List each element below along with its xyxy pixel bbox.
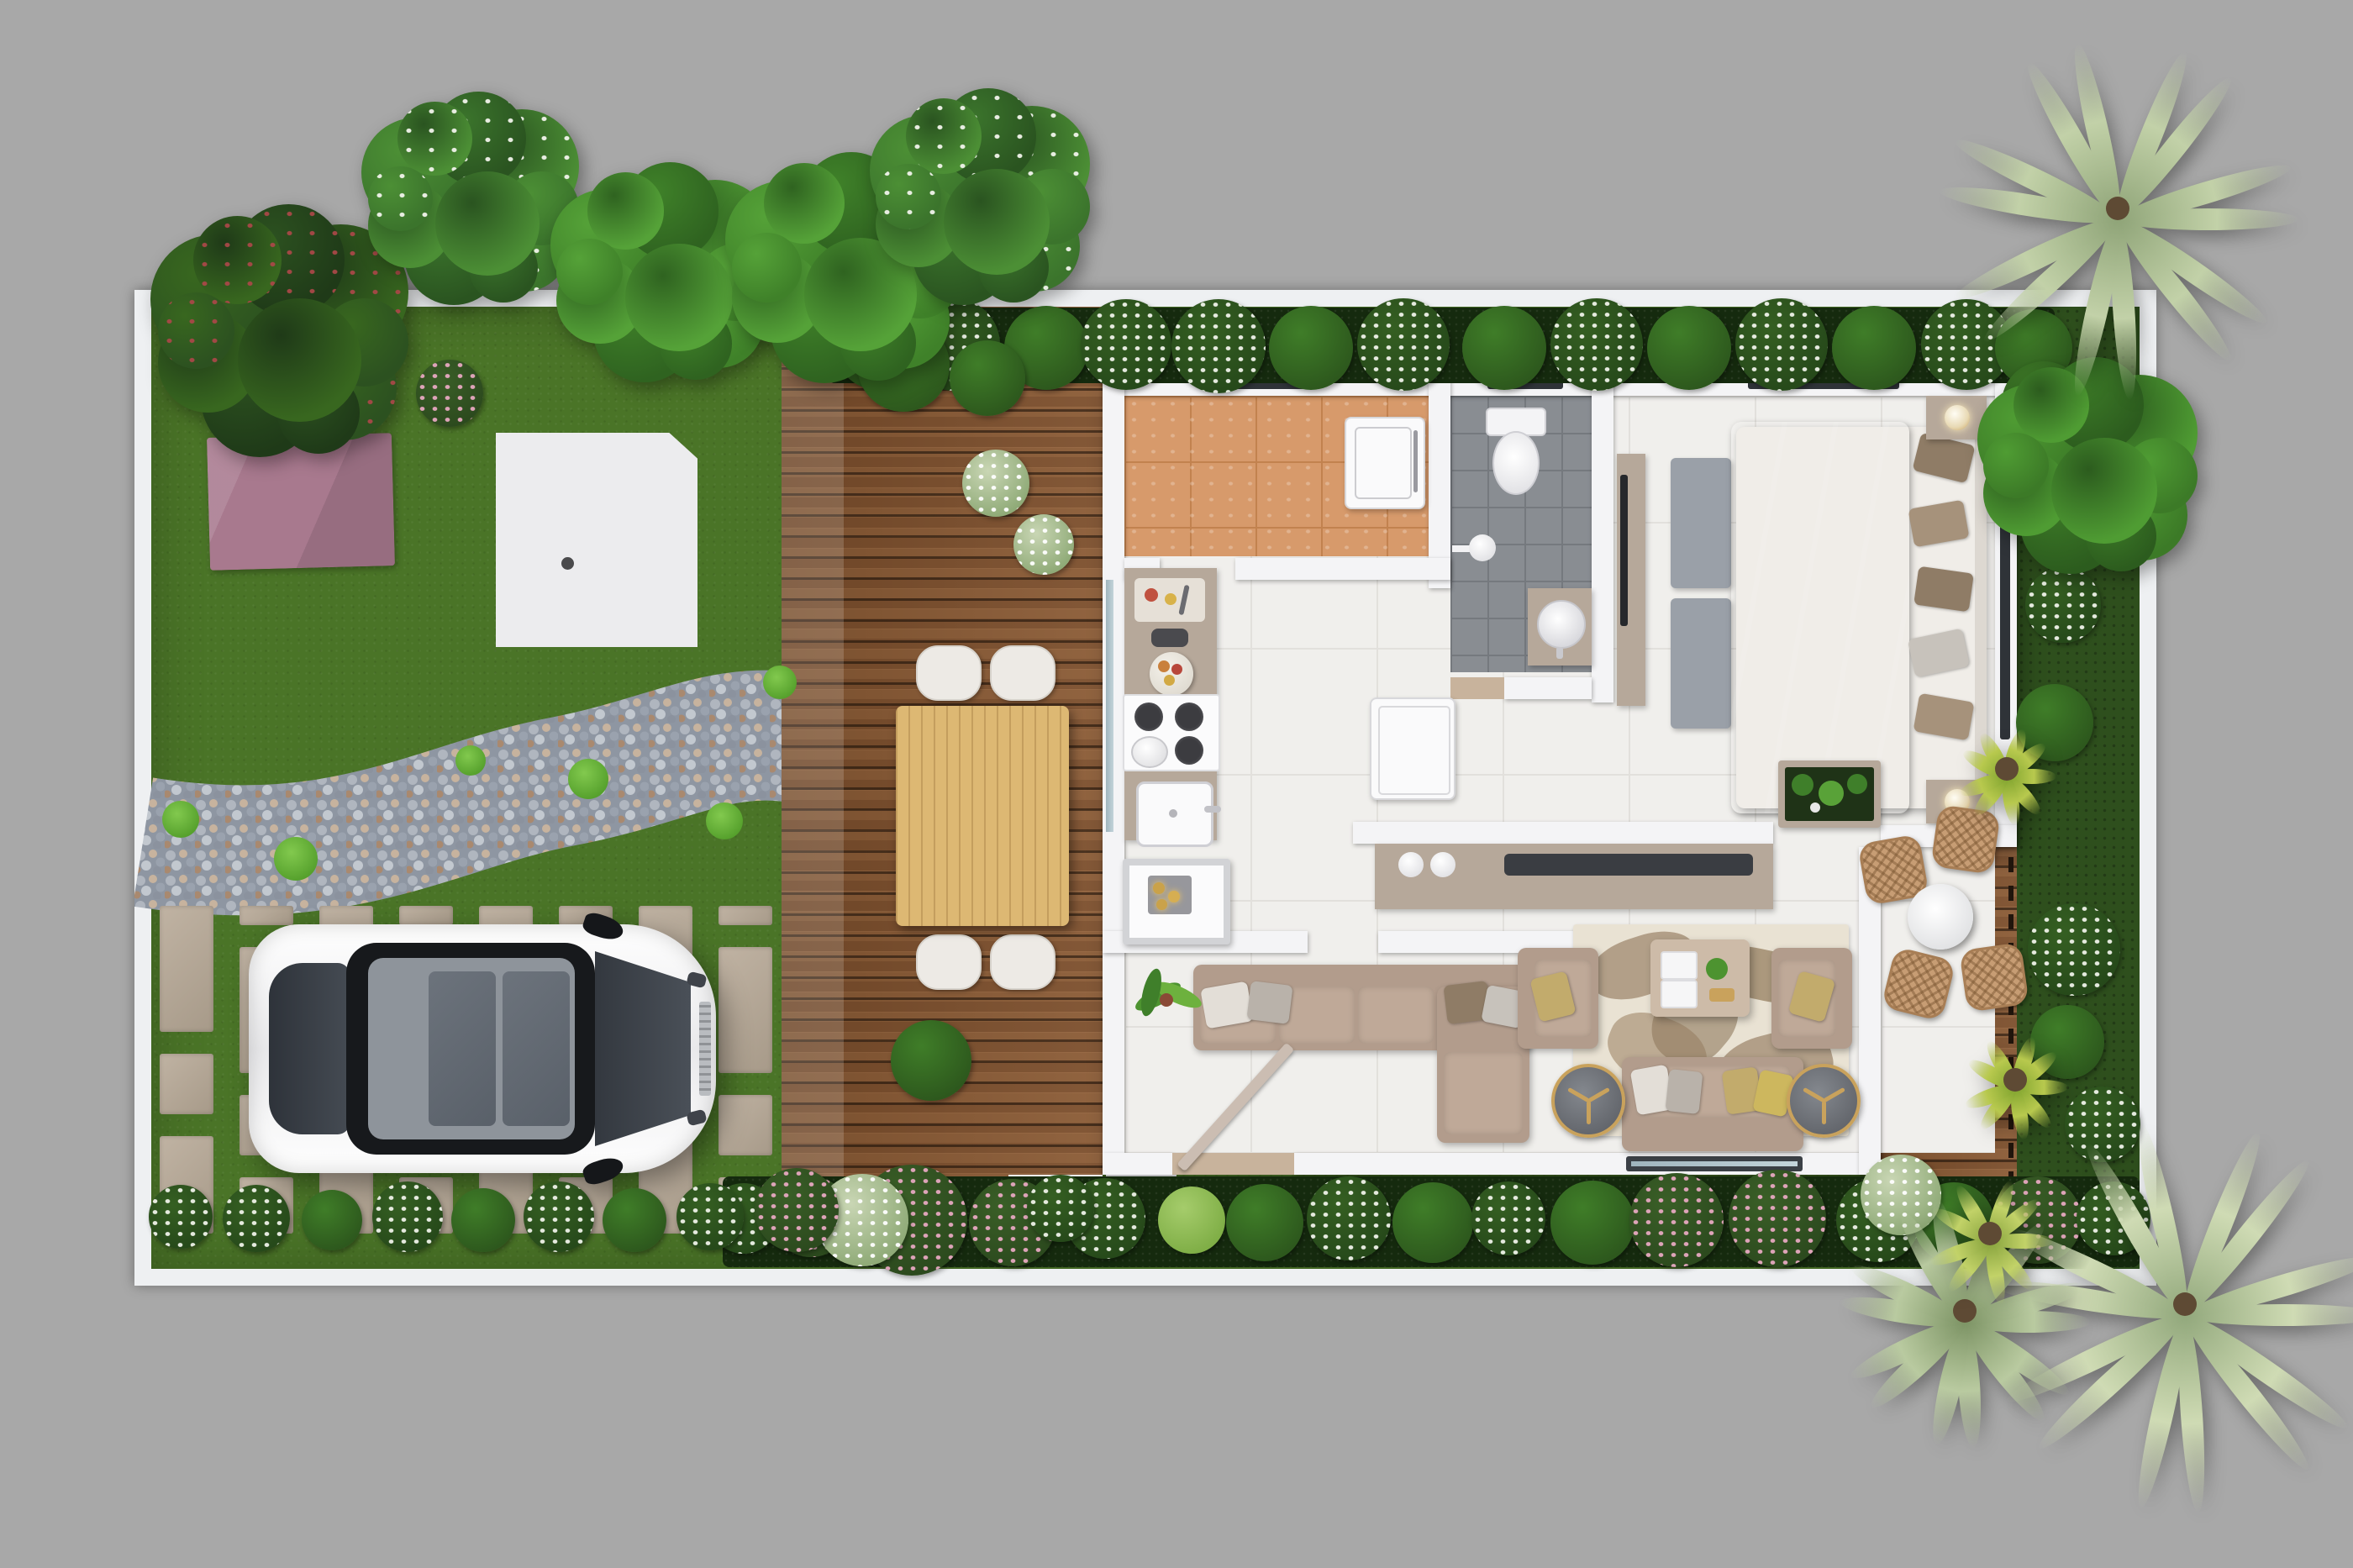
dining-chair-1 <box>916 645 982 701</box>
coffee-table-plant <box>1706 958 1728 980</box>
grass-tuft <box>455 745 486 776</box>
shrub-white <box>2028 903 2120 996</box>
living-sofa <box>1622 1057 1803 1151</box>
aquarium-plant-1 <box>1792 774 1813 796</box>
firebox <box>1148 876 1192 914</box>
tree-flowers <box>876 164 941 229</box>
dining-chair-4 <box>990 934 1055 990</box>
bed-duvet <box>1731 422 1909 813</box>
floor-plan-scene <box>0 0 2353 1568</box>
tree-terrace-fern-bottom <box>1960 1024 2071 1135</box>
shrub-flowers <box>149 1185 213 1249</box>
sectional-sofa <box>1193 965 1529 1143</box>
washing-machine-door-slit <box>1413 430 1418 492</box>
shrub-flowers <box>676 1183 744 1250</box>
shrub-green <box>1392 1182 1473 1263</box>
shrub-green <box>451 1188 515 1252</box>
shrub-pink <box>1629 1173 1724 1267</box>
shrub-white <box>149 1185 213 1249</box>
tree-blob <box>238 298 361 422</box>
shrub-pink <box>1729 1170 1826 1267</box>
shrub-white <box>1550 298 1643 391</box>
dining-chair-3 <box>916 934 982 990</box>
driveway-paver <box>719 906 772 925</box>
burner-1 <box>1134 702 1163 731</box>
side-table-left-spoke-1 <box>1587 1101 1591 1124</box>
driveway-paver <box>160 1054 213 1114</box>
shrub-white <box>223 1185 290 1252</box>
fruit-1 <box>1158 660 1170 672</box>
shrub-white <box>372 1181 443 1252</box>
shrub-green <box>603 1188 666 1252</box>
plant-center <box>1160 993 1173 1007</box>
tree-blob <box>764 163 845 244</box>
tree-deck-fern-bottom <box>1923 1166 2057 1301</box>
tree-blossom-tree-deck <box>855 76 1108 328</box>
palm-crown <box>1953 1299 1977 1323</box>
living-sofa-pillow-2 <box>1665 1069 1703 1114</box>
armchair-left <box>1518 948 1598 1049</box>
shrub-green <box>1462 306 1546 390</box>
coffee-tray-2 <box>1661 980 1698 1008</box>
island-bar-counter <box>1375 844 1773 909</box>
aquarium-ornament <box>1810 802 1820 813</box>
shrub-flowers <box>1307 1176 1391 1260</box>
side-table-left <box>1551 1064 1625 1138</box>
shrub-green <box>1226 1184 1303 1261</box>
shrub-flowers <box>372 1181 443 1252</box>
grass-tuft <box>706 802 743 839</box>
shrub-flowers <box>962 450 1029 517</box>
pot-on-hob <box>1131 736 1168 768</box>
shrub-flowers <box>1357 298 1450 391</box>
burner-2 <box>1175 702 1203 731</box>
shrub-flowers <box>1027 1175 1094 1242</box>
kitchen-sink <box>1136 781 1213 847</box>
island-hob-strip <box>1504 854 1753 876</box>
burner-3 <box>1175 736 1203 765</box>
cutting-board <box>1134 578 1205 622</box>
shrub-flowers <box>1550 298 1643 391</box>
tree-blob <box>2051 438 2157 544</box>
sectional-pillow-white <box>1200 981 1253 1029</box>
grass-tuft <box>274 837 318 881</box>
side-table-right-spoke-3 <box>1823 1087 1845 1102</box>
tree-blob <box>1983 433 2049 498</box>
suv-grille <box>699 1002 711 1096</box>
sink-faucet <box>1204 806 1221 813</box>
vanity-faucet <box>1556 647 1563 659</box>
bar-bowl-1 <box>1398 852 1424 877</box>
suv-sunroof-2 <box>503 971 570 1126</box>
coffee-tray-1 <box>1661 951 1698 980</box>
shrub-flowers <box>2028 903 2120 996</box>
tree-flowers <box>193 216 282 304</box>
tree-blob <box>944 169 1050 275</box>
terrace-round-table <box>1908 884 1973 950</box>
shrub-white <box>1471 1181 1545 1255</box>
shrub-flowers <box>755 1168 839 1252</box>
board-fruit-yellow <box>1165 593 1176 605</box>
fire-log-1 <box>1153 882 1165 894</box>
shrub-white <box>676 1183 744 1250</box>
double-bed <box>1736 427 1985 808</box>
fire-log-2 <box>1168 891 1180 902</box>
bedside-bench-bottom <box>1671 598 1731 729</box>
shrub-green <box>1832 306 1916 390</box>
fruit-bowl <box>1150 652 1193 696</box>
shrub-flowers <box>223 1185 290 1252</box>
tree-flowers <box>397 102 472 176</box>
shrub-flowers <box>1735 298 1828 391</box>
tree-flowers <box>368 166 433 231</box>
shower-head <box>1469 534 1496 561</box>
bathroom-door-threshold <box>1450 677 1504 699</box>
tree-blob <box>732 233 802 303</box>
side-table-left-spoke-2 <box>1567 1087 1590 1102</box>
coffee-table-gold-deco <box>1709 988 1734 1002</box>
shrub-white <box>1171 299 1266 393</box>
deck-light-band <box>782 307 844 1185</box>
suv-windshield <box>595 951 691 1146</box>
dining-chair-2 <box>990 645 1055 701</box>
shrub-white <box>1357 298 1450 391</box>
suv-rear-window <box>269 963 350 1134</box>
wall-shower <box>1452 534 1494 563</box>
fruit-3 <box>1164 675 1175 686</box>
sink-drain <box>1169 809 1177 818</box>
side-table-left-spoke-3 <box>1587 1087 1610 1102</box>
shrub-ball <box>1158 1187 1225 1254</box>
bedroom-tv <box>1620 475 1628 626</box>
bathroom-vanity <box>1528 588 1592 666</box>
aquarium-tank <box>1785 767 1874 821</box>
palm-crown <box>2003 1068 2027 1092</box>
shrub-flowers <box>1171 299 1266 393</box>
tree-flowers <box>906 98 982 174</box>
driveway-paver <box>719 947 772 1073</box>
sectional-cushion-3 <box>1358 987 1434 1044</box>
wicker-stool-4 <box>1959 942 2029 1013</box>
side-table-right-spoke-2 <box>1803 1087 1825 1102</box>
tree-blob <box>587 172 664 249</box>
palm-crown <box>2173 1292 2197 1316</box>
armchair-right <box>1771 948 1852 1049</box>
shrub-flowers <box>1729 1170 1826 1267</box>
fruit-2 <box>1171 664 1182 675</box>
shrub-flowers <box>1013 514 1074 575</box>
tree-palm-top-right <box>1937 28 2298 389</box>
palm-crown <box>1995 757 2019 781</box>
palm-crown <box>1978 1222 2002 1245</box>
palm-crown <box>2106 197 2129 220</box>
shrub-green <box>1550 1181 1634 1265</box>
grass-tuft <box>763 666 797 699</box>
tree-blob <box>435 171 540 276</box>
sectional-pillow-gray <box>1246 981 1292 1024</box>
side-table-right-spoke-1 <box>1822 1101 1826 1124</box>
hall-console-top-line <box>1378 706 1450 795</box>
shed-roof-vent <box>561 557 574 570</box>
toilet-bowl <box>1492 431 1540 495</box>
aquarium-plant-2 <box>1819 781 1844 806</box>
suv-sunroof-1 <box>429 971 496 1126</box>
window-living-south-glass <box>1631 1161 1798 1166</box>
gas-hob <box>1123 694 1220 771</box>
vanity-basin <box>1537 600 1586 649</box>
shrub-green <box>302 1190 362 1250</box>
driveway-paver <box>160 906 213 1032</box>
coffee-table <box>1650 939 1750 1017</box>
board-fruit-red <box>1145 588 1158 602</box>
garden-shed <box>496 433 697 647</box>
bedside-bench-top <box>1671 458 1731 588</box>
wall-laundry-bottom-b <box>1235 558 1450 580</box>
grass-tuft <box>162 801 199 838</box>
shrub-white <box>1027 1175 1094 1242</box>
shrub-deckwhite <box>1013 514 1074 575</box>
tree-terrace-fern-top <box>1955 717 2059 821</box>
wall-laundry-bathroom <box>1429 374 1450 588</box>
washing-machine <box>1345 417 1425 509</box>
white-suv <box>249 918 716 1180</box>
lounge-potted-plant <box>1129 963 1205 1039</box>
fireplace <box>1123 859 1230 944</box>
shrub-flowers <box>524 1181 594 1252</box>
grass-tuft <box>568 759 608 799</box>
shrub-white <box>1735 298 1828 391</box>
coffee-grinder <box>1151 629 1188 647</box>
wall-bottom-left-of-door <box>1103 1153 1172 1175</box>
shrub-flowers <box>1629 1173 1724 1267</box>
shrub-green <box>1269 306 1353 390</box>
aquarium-console <box>1778 760 1881 828</box>
bar-bowl-2 <box>1430 852 1455 877</box>
wall-bathroom-bottom <box>1504 677 1592 699</box>
wall-bathroom-right <box>1592 374 1613 702</box>
dining-table <box>896 706 1069 926</box>
toilet <box>1486 408 1543 495</box>
shrub-green <box>891 1020 971 1101</box>
island-half-wall <box>1353 822 1773 844</box>
shrub-white <box>1307 1176 1391 1260</box>
driveway-paver <box>719 1095 772 1155</box>
kitchen-pass-window <box>1106 580 1113 832</box>
hall-console <box>1370 697 1455 800</box>
tree-flowers <box>158 292 234 369</box>
shrub-deckwhite <box>962 450 1029 517</box>
side-table-right <box>1787 1064 1861 1138</box>
sectional-chaise-cushion <box>1444 1052 1523 1134</box>
shrub-white <box>524 1181 594 1252</box>
shrub-pink <box>755 1168 839 1252</box>
fire-log-3 <box>1156 899 1167 910</box>
board-knife <box>1178 585 1189 615</box>
bedroom-tv-console <box>1617 454 1645 706</box>
shrub-green <box>1647 306 1731 390</box>
shrub-flowers <box>1471 1181 1545 1255</box>
washing-machine-lid <box>1355 427 1412 499</box>
aquarium-plant-3 <box>1847 774 1867 794</box>
